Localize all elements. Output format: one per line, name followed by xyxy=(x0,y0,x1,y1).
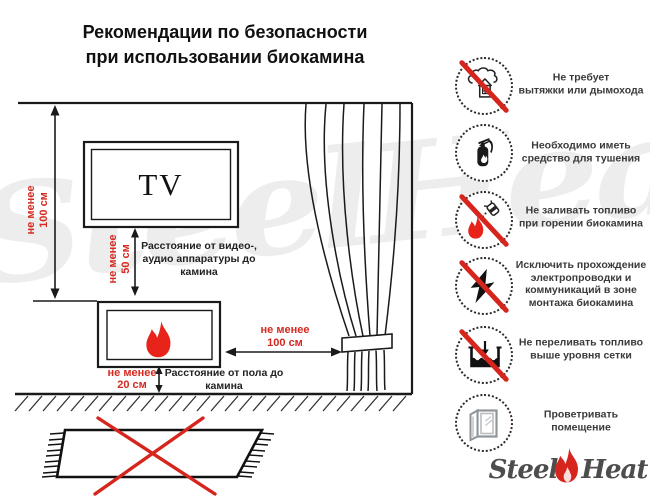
rule-text-5: Не переливать топливо выше уровня сетки xyxy=(512,337,650,362)
extinguisher-icon xyxy=(465,134,503,172)
rule-circle-no-overfill xyxy=(455,326,513,384)
rule-text-4: Исключить прохождение электропроводки и … xyxy=(512,259,650,309)
ventilate-icon xyxy=(464,403,504,443)
rule-text-3: Не заливать топливо при горении биокамин… xyxy=(512,205,650,230)
label-floor-distance: Расстояние от пола до камина xyxy=(164,367,284,392)
dim-label-100cm-wall: не менее 100 см xyxy=(25,160,55,260)
rule-text-6: Проветривать помещение xyxy=(512,409,650,434)
rule-circle-no-refill xyxy=(455,191,513,249)
logo-text-heat: Heat xyxy=(581,455,647,485)
logo-flame-icon xyxy=(554,448,584,486)
rug xyxy=(42,418,274,494)
dim-label-100cm-curtain: не менее 100 см xyxy=(245,324,325,350)
fireplace-box xyxy=(98,302,220,367)
dim-label-50cm-tv: не менее 50 см xyxy=(107,219,137,299)
page-title: Рекомендации по безопасности при использ… xyxy=(10,20,440,70)
label-tv-distance: Расстояние от видео-, аудио аппаратуры д… xyxy=(140,240,258,279)
curtain-tie-band xyxy=(342,334,392,352)
rule-circle-no-wiring xyxy=(455,257,513,315)
rule-text-1: Не требует вытяжки или дымохода xyxy=(512,72,650,97)
tv-label: TV xyxy=(84,142,238,227)
rule-circle-extinguisher xyxy=(455,124,513,182)
brand-logo: Steel Heat xyxy=(488,444,648,496)
fuel-bottle xyxy=(484,200,499,216)
dim-label-20cm-floor: не менее 20 см xyxy=(96,367,168,391)
rule-circle-no-chimney xyxy=(455,57,513,115)
logo-text-steel: Steel xyxy=(489,455,558,485)
safety-infographic: SteelHeat Рекомендации по безопасности п… xyxy=(0,0,650,502)
rule-text-2: Необходимо иметь средство для тушения xyxy=(512,140,650,165)
floor-hatching xyxy=(15,396,406,411)
